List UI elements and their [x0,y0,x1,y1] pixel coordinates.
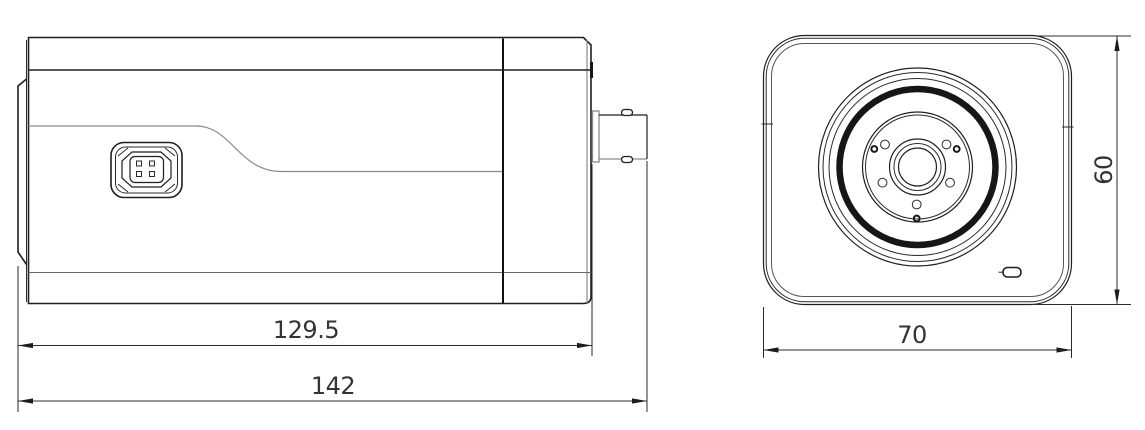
mount-plate-circle-inner [866,115,970,219]
front-view [762,36,1074,305]
outer-ring-circle-2 [823,73,1012,262]
connector-pin [137,172,142,177]
connector-socket [130,157,164,183]
dimension-front-width: 70 [764,321,1072,353]
arrowhead-left [764,347,779,352]
connector-inner-frame [116,147,178,193]
front-face-inner-outline [772,44,1064,297]
side-view [18,38,647,304]
indicator-slot [999,268,1022,278]
lens-mount-flange [18,79,27,265]
connector-pin [137,161,142,166]
mount-plate-circle-outer [863,112,973,222]
mount-plate-holes [871,140,959,221]
dimension-front-height: 60 [1090,36,1120,305]
front-face-outer-outline [764,36,1072,305]
accessory-connector [111,143,182,198]
arrowhead-bottom [1114,290,1119,305]
dimension-body-length: 129.5 [18,316,592,348]
outer-ring-circle-1 [819,68,1017,266]
bnc-collar [593,111,600,162]
dimension-label-front-width: 70 [897,321,927,349]
arrowhead-right [577,343,592,348]
screw-hole [912,200,921,209]
arrowhead-left [18,398,33,403]
pin-hole [954,146,960,152]
arrowhead-right [1057,347,1072,352]
drawing-canvas: 129.5 142 70 60 [0,0,1145,430]
camera-body-outline [29,38,592,304]
dimension-label-body-length: 129.5 [273,316,339,344]
arrowhead-right [632,398,647,403]
pin-hole [871,146,877,152]
arrowhead-top [1114,36,1119,51]
connector-pin [150,172,155,177]
housing-contour-curve [29,126,504,172]
outer-ring-circle-3 [829,79,1006,256]
front-face-second-outline [766,38,1069,302]
bnc-connector [593,110,648,163]
screw-hole [881,140,890,149]
lens-barrel-circle-mid [894,144,941,191]
connector-pins [137,161,155,177]
lens-aperture-circle [899,148,937,186]
lens-mount-rings [819,68,1017,266]
dimensions: 129.5 142 70 60 [18,36,1131,412]
indicator-slot-opening [1003,268,1021,278]
screw-hole [946,178,955,187]
arrowhead-left [18,343,33,348]
dimension-label-total-length: 142 [311,372,355,400]
dimension-total-length: 142 [18,372,647,404]
bnc-bayonet-pin-top [622,110,633,116]
connector-corner-chamfer-lines [118,148,175,192]
bnc-bayonet-pin-bottom [622,157,633,163]
screw-hole [878,178,887,187]
screw-hole [942,140,951,149]
dimension-label-front-height: 60 [1090,155,1118,185]
technical-drawing: 129.5 142 70 60 [0,0,1145,430]
connector-pin [150,161,155,166]
